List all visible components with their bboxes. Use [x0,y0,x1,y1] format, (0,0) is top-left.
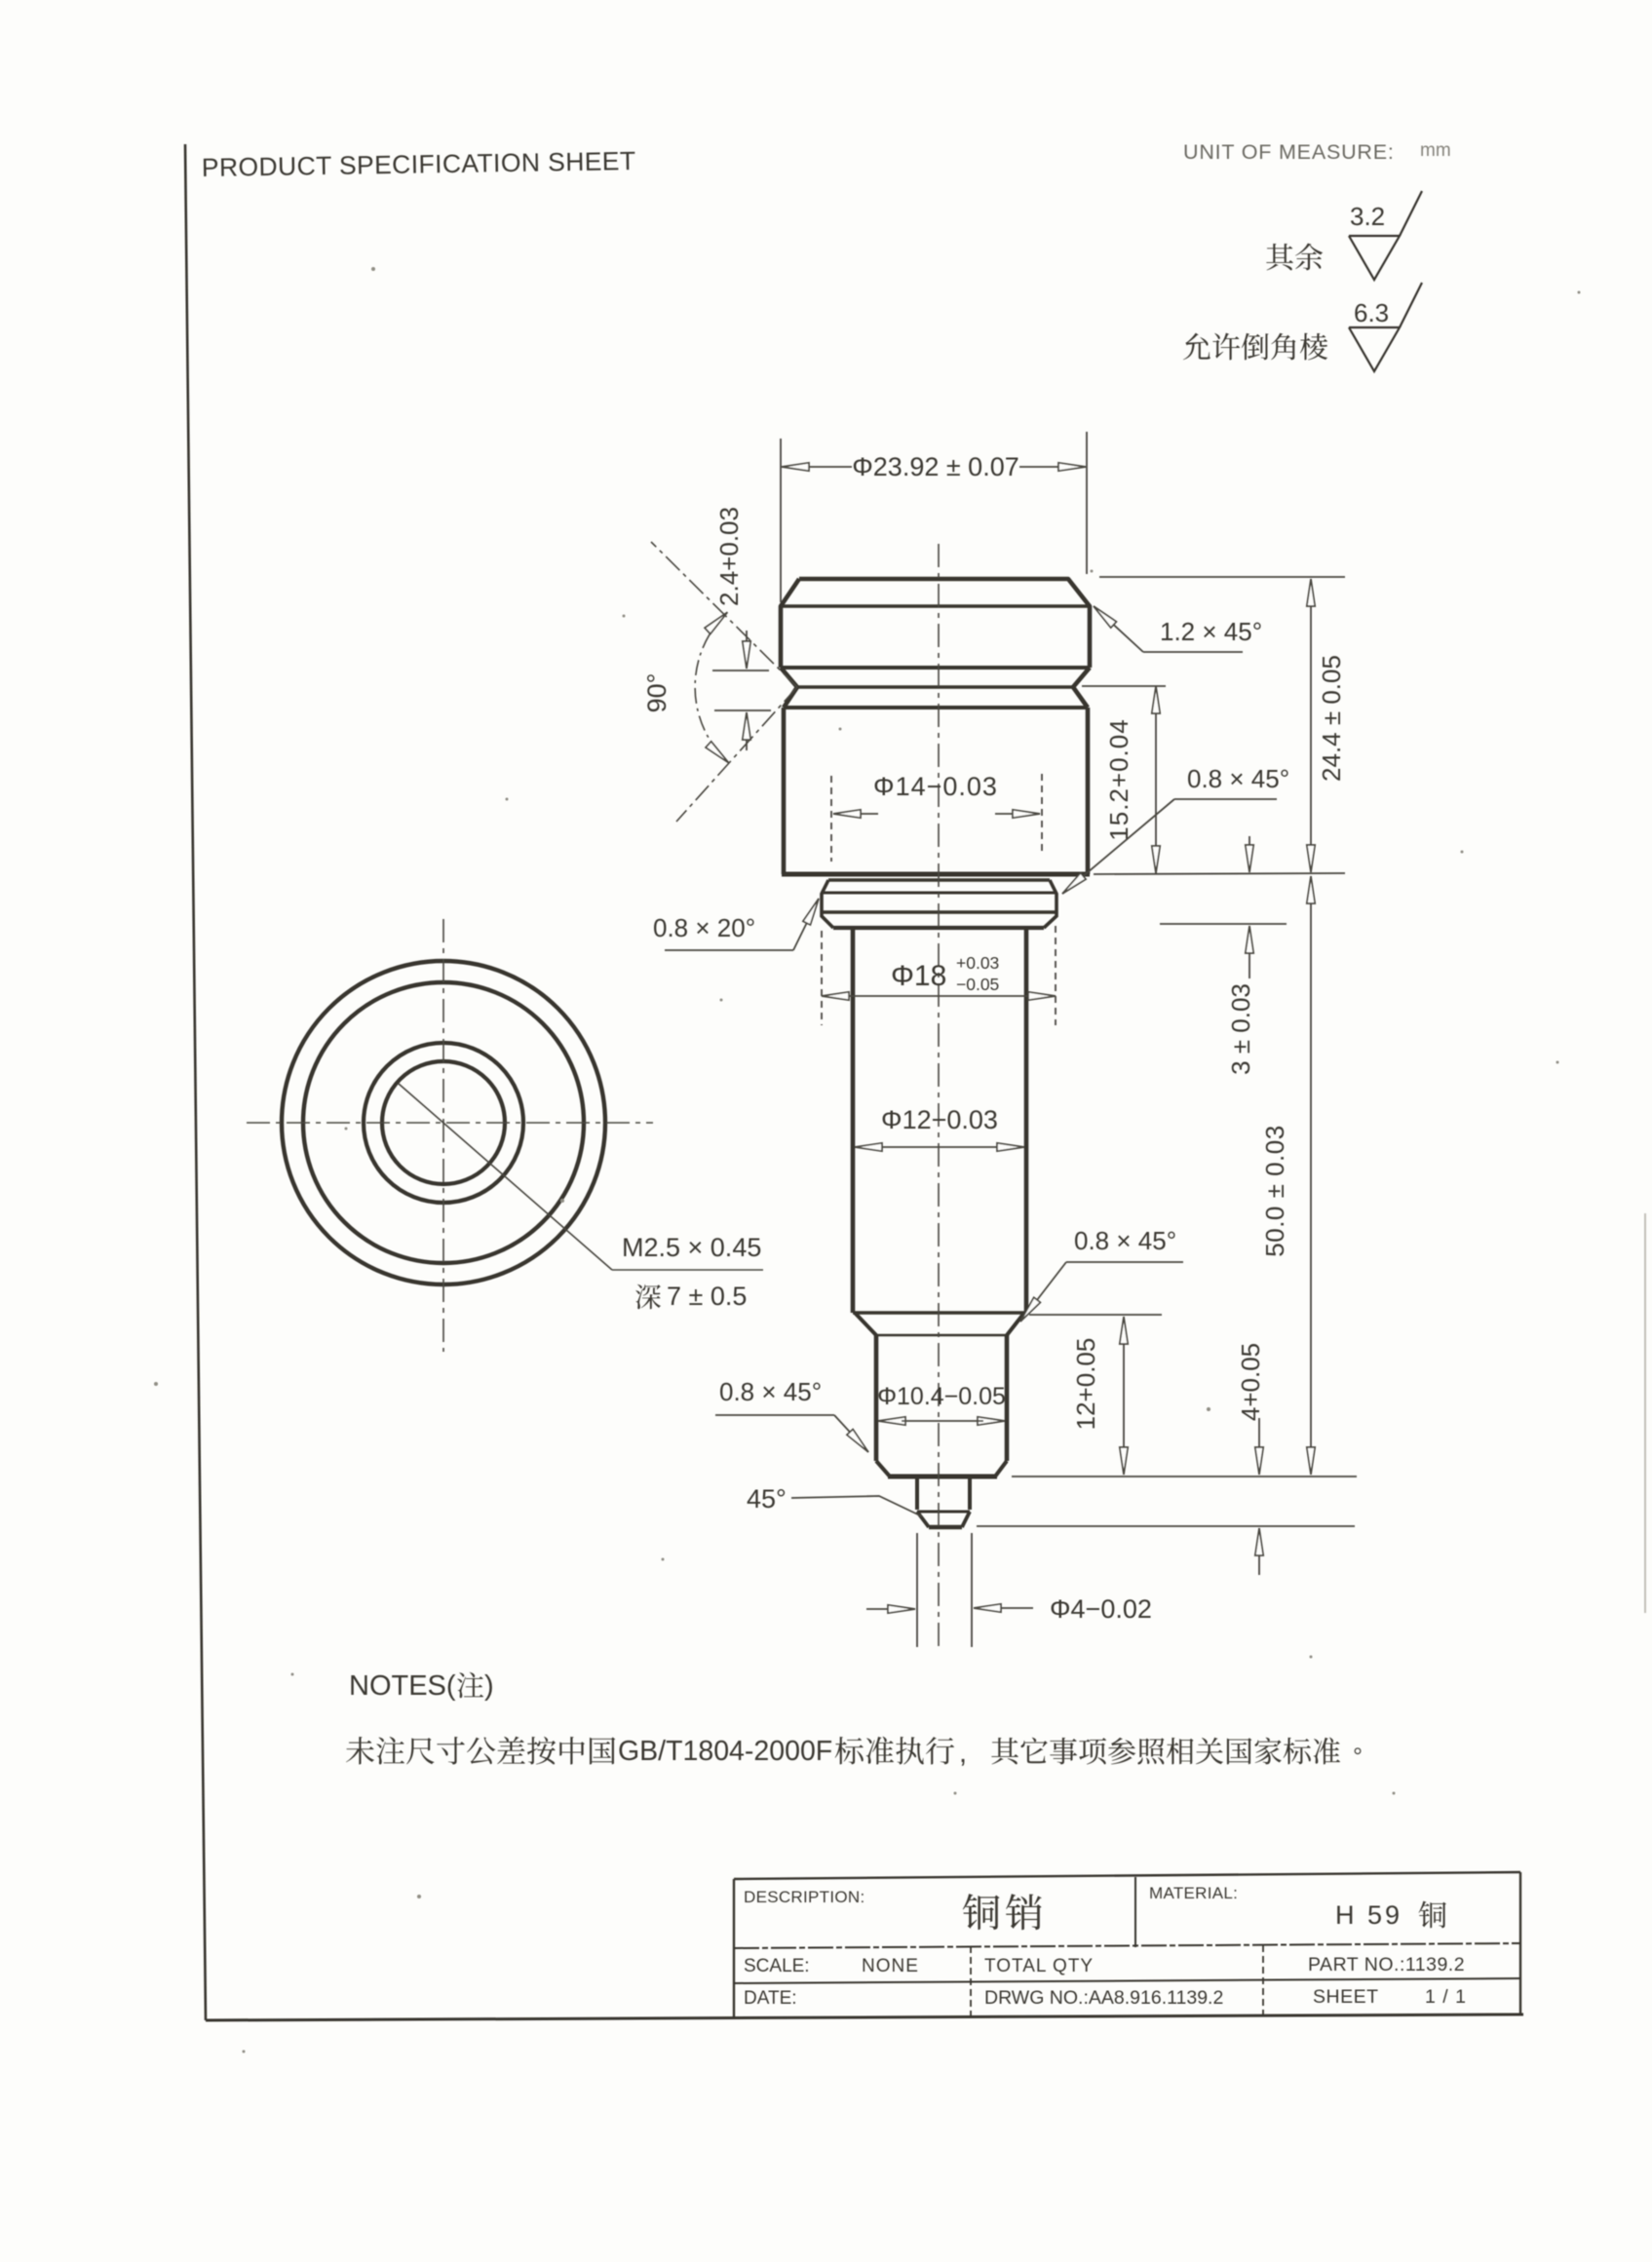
svg-text:SCALE:: SCALE: [744,1956,810,1976]
svg-text:50.0 ± 0.03: 50.0 ± 0.03 [1260,1125,1289,1256]
svg-text:MATERIAL:: MATERIAL: [1149,1884,1238,1902]
svg-text:,: , [959,1738,967,1769]
svg-text:3.2: 3.2 [1350,202,1385,231]
svg-text:M2.5 × 0.45: M2.5 × 0.45 [622,1233,761,1262]
svg-text:): ) [484,1670,494,1702]
svg-text:7 ± 0.5: 7 ± 0.5 [667,1282,747,1311]
svg-text:GB/T1804-2000F: GB/T1804-2000F [618,1736,832,1767]
svg-text:Φ4−0.02: Φ4−0.02 [1050,1594,1152,1624]
svg-text:SHEET: SHEET [1313,1986,1379,2008]
svg-text:mm: mm [1420,140,1451,161]
svg-text:−0.05: −0.05 [956,975,999,994]
svg-text:90°: 90° [642,673,672,713]
svg-text:24.4 ± 0.05: 24.4 ± 0.05 [1317,655,1346,782]
svg-text:DATE:: DATE: [744,1988,797,2009]
svg-text:2.4+0.03: 2.4+0.03 [714,507,744,606]
svg-text:Φ14−0.03: Φ14−0.03 [873,772,998,801]
svg-text:3 ± 0.03: 3 ± 0.03 [1226,983,1255,1075]
svg-text:1 / 1: 1 / 1 [1425,1986,1467,2008]
svg-text:15.2+0.04: 15.2+0.04 [1104,718,1133,840]
svg-text:UNIT OF MEASURE:: UNIT OF MEASURE: [1183,140,1395,164]
svg-text:6.3: 6.3 [1354,298,1389,327]
svg-text:PART NO.:1139.2: PART NO.:1139.2 [1308,1954,1465,1975]
svg-text:12+0.05: 12+0.05 [1071,1338,1100,1431]
svg-text:Φ12−0.03: Φ12−0.03 [881,1105,998,1134]
svg-text:Φ23.92 ± 0.07: Φ23.92 ± 0.07 [852,452,1018,481]
svg-text:Φ18: Φ18 [891,960,946,992]
svg-text:+0.03: +0.03 [956,953,999,973]
svg-text:TOTAL QTY: TOTAL QTY [984,1956,1094,1976]
svg-text:0.8 × 20°: 0.8 × 20° [653,913,755,942]
svg-text:Φ10.4−0.05: Φ10.4−0.05 [877,1383,1006,1410]
svg-text:NOTES(: NOTES( [349,1670,456,1702]
svg-text:NONE: NONE [862,1956,919,1976]
svg-text:DRWG NO.:AA8.916.1139.2: DRWG NO.:AA8.916.1139.2 [984,1987,1223,2009]
svg-text:4+0.05: 4+0.05 [1236,1343,1265,1421]
svg-text:0.8 × 45°: 0.8 × 45° [1074,1226,1176,1255]
svg-text:0.8 × 45°: 0.8 × 45° [719,1377,822,1406]
svg-text:H 59: H 59 [1335,1900,1402,1930]
svg-text:0.8 × 45°: 0.8 × 45° [1187,764,1289,793]
svg-text:1.2 × 45°: 1.2 × 45° [1160,617,1262,646]
svg-text:45°: 45° [747,1484,787,1514]
svg-text:DESCRIPTION:: DESCRIPTION: [744,1888,865,1906]
